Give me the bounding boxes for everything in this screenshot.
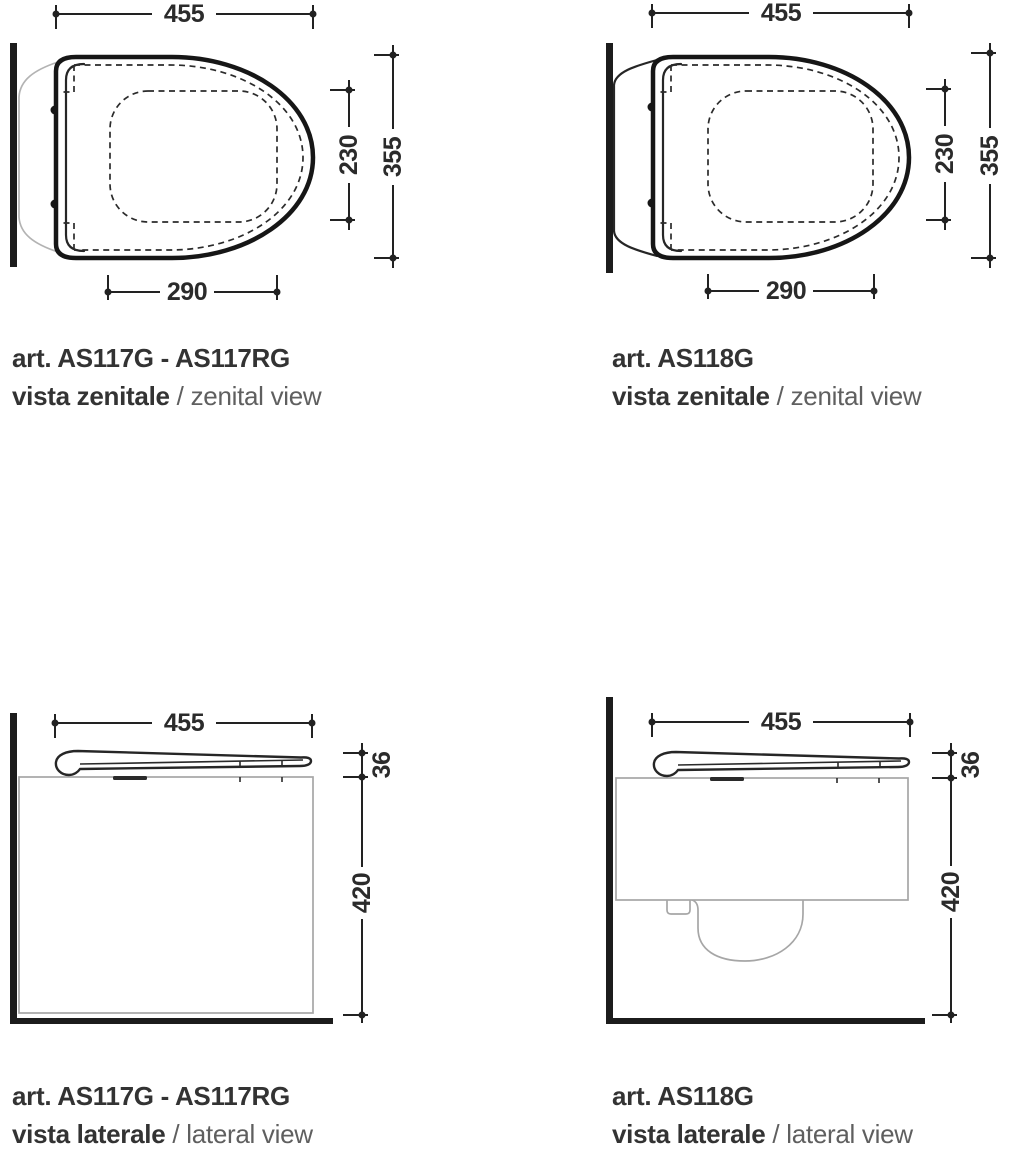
seat-bumper xyxy=(710,777,744,781)
spec-sheet-page: 455 230 355 290 art. AS117G - A xyxy=(0,0,1012,1152)
dim-value-455: 455 xyxy=(164,0,205,28)
trap-outline xyxy=(692,900,803,961)
seat-cover-outline xyxy=(653,57,909,258)
wall-line xyxy=(606,43,613,273)
view-name-italian: vista zenitale xyxy=(12,381,170,411)
view-name-italian: vista zenitale xyxy=(612,381,770,411)
drawing-as118-lateral-view: 455 36 420 xyxy=(595,690,1012,1040)
dim-value-355: 355 xyxy=(379,136,407,177)
bowl-body-outline xyxy=(614,60,657,256)
view-name-english: zenital view xyxy=(791,381,922,411)
view-separator: / xyxy=(772,1119,779,1149)
wall-line xyxy=(10,43,17,267)
bowl-body xyxy=(616,778,908,900)
dim-value-420: 420 xyxy=(937,872,965,912)
dimension-overall-depth: 355 xyxy=(971,43,1004,268)
drawing-as117-lateral-view: 455 36 420 xyxy=(0,690,450,1040)
dimension-bowl-height: 420 xyxy=(343,777,376,1023)
view-label: vista laterale/lateral view xyxy=(12,1115,313,1152)
wall-line xyxy=(606,697,613,1024)
dim-value-36: 36 xyxy=(368,752,396,779)
dim-value-420: 420 xyxy=(348,873,376,913)
article-code: art. AS118G xyxy=(612,339,921,377)
dimension-inner-depth: 230 xyxy=(330,80,363,230)
dimension-overall-depth: 355 xyxy=(374,45,407,268)
drawing-as117-zenital-view: 455 230 355 290 xyxy=(0,0,440,320)
wall-line xyxy=(10,713,17,1024)
article-code: art. AS117G - AS117RG xyxy=(12,1077,313,1115)
caption-as117-zenital: art. AS117G - AS117RG vista zenitale/zen… xyxy=(12,339,321,415)
dimension-inner-depth: 230 xyxy=(926,79,959,230)
dim-value-290: 290 xyxy=(167,278,207,306)
article-code: art. AS118G xyxy=(612,1077,913,1115)
dimension-overall-width: 455 xyxy=(649,708,914,737)
view-name-english: lateral view xyxy=(786,1119,912,1149)
caption-as118-zenital: art. AS118G vista zenitale/zenital view xyxy=(612,339,921,415)
view-separator: / xyxy=(777,381,784,411)
view-name-english: lateral view xyxy=(186,1119,312,1149)
view-name-italian: vista laterale xyxy=(12,1119,165,1149)
dim-value-455: 455 xyxy=(164,709,205,737)
dimension-overall-width: 455 xyxy=(53,0,317,29)
dimension-seat-thickness: 36 xyxy=(343,743,396,781)
dimension-overall-width: 455 xyxy=(649,0,913,28)
view-separator: / xyxy=(172,1119,179,1149)
dimension-front-width: 290 xyxy=(105,275,281,306)
article-code: art. AS117G - AS117RG xyxy=(12,339,321,377)
dim-value-455: 455 xyxy=(761,708,802,736)
caption-as118-lateral: art. AS118G vista laterale/lateral view xyxy=(612,1077,913,1152)
view-label: vista zenitale/zenital view xyxy=(612,377,921,415)
dim-value-455: 455 xyxy=(761,0,802,27)
drawing-as118-zenital-view: 455 230 355 290 xyxy=(595,0,1012,320)
view-label: vista laterale/lateral view xyxy=(612,1115,913,1152)
dimension-front-width: 290 xyxy=(705,274,878,305)
seat-bumper xyxy=(113,776,147,780)
view-label: vista zenitale/zenital view xyxy=(12,377,321,415)
seat-profile-group xyxy=(654,752,909,776)
dim-value-230: 230 xyxy=(335,135,363,175)
seat-cover-outline xyxy=(56,57,313,258)
dimension-overall-width: 455 xyxy=(52,709,316,738)
dimension-seat-thickness: 36 xyxy=(932,743,985,782)
dim-value-355: 355 xyxy=(976,135,1004,176)
inlet-tab xyxy=(667,900,690,914)
bowl-body-outline xyxy=(19,62,58,252)
floor-line xyxy=(606,1018,925,1024)
view-separator: / xyxy=(177,381,184,411)
dim-value-290: 290 xyxy=(766,277,806,305)
bowl-body xyxy=(19,777,313,1013)
view-name-english: zenital view xyxy=(191,381,322,411)
caption-as117-lateral: art. AS117G - AS117RG vista laterale/lat… xyxy=(12,1077,313,1152)
dim-value-230: 230 xyxy=(931,134,959,174)
dim-value-36: 36 xyxy=(957,752,985,779)
view-name-italian: vista laterale xyxy=(612,1119,765,1149)
dimension-bowl-height: 420 xyxy=(932,778,965,1023)
floor-line xyxy=(10,1018,333,1024)
